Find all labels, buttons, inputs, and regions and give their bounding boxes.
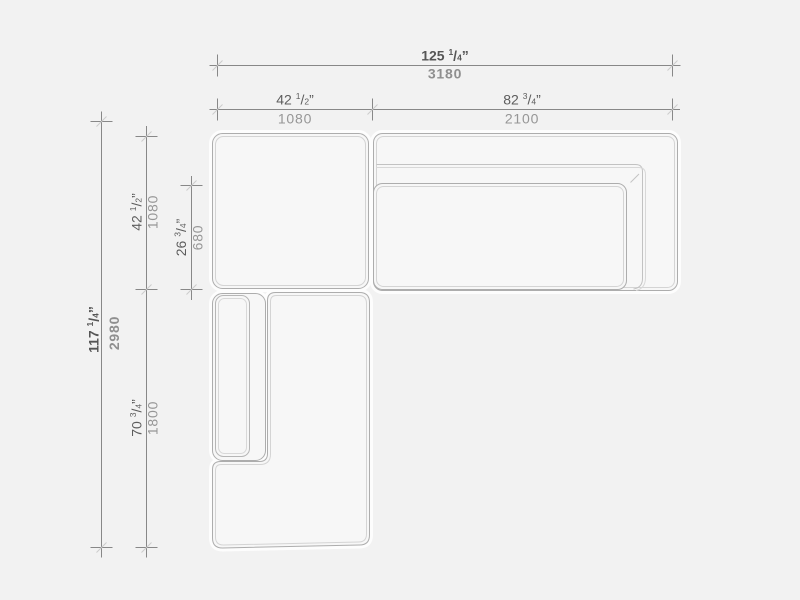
svg-text:82 3/4”: 82 3/4” <box>503 91 541 108</box>
svg-text:117 1/4”: 117 1/4” <box>85 306 102 353</box>
svg-text:125 1/4”: 125 1/4” <box>421 47 469 64</box>
svg-text:1080: 1080 <box>145 195 161 229</box>
svg-text:680: 680 <box>190 225 206 251</box>
svg-text:3180: 3180 <box>428 66 462 82</box>
svg-text:42 1/2”: 42 1/2” <box>276 91 314 108</box>
svg-text:1800: 1800 <box>145 401 161 435</box>
svg-text:70 3/4”: 70 3/4” <box>128 399 145 437</box>
svg-text:2100: 2100 <box>505 111 539 127</box>
svg-text:1080: 1080 <box>278 111 312 127</box>
svg-text:42 1/2”: 42 1/2” <box>128 193 145 231</box>
svg-text:2980: 2980 <box>106 316 122 350</box>
svg-text:26 3/4”: 26 3/4” <box>173 218 190 256</box>
